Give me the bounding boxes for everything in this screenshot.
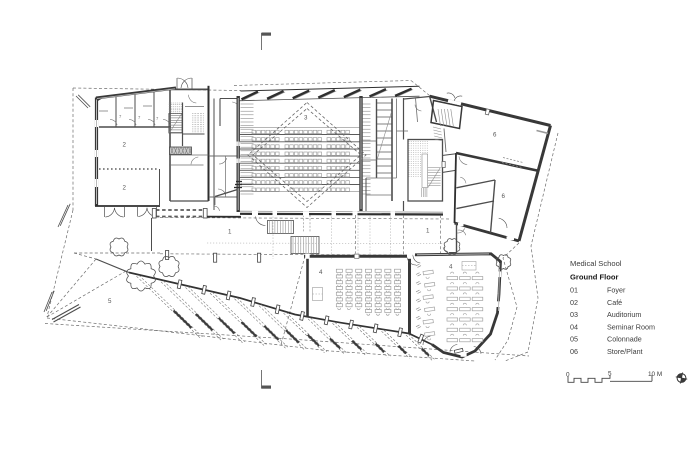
svg-text:Medical School: Medical School	[570, 259, 622, 268]
svg-text:5: 5	[108, 298, 112, 305]
svg-text:03: 03	[570, 310, 578, 319]
svg-text:Auditorium: Auditorium	[607, 310, 641, 319]
svg-text:Colonnade: Colonnade	[607, 335, 642, 344]
svg-text:4: 4	[319, 269, 323, 276]
svg-text:05: 05	[570, 335, 578, 344]
svg-text:10 M: 10 M	[648, 371, 662, 378]
svg-text:Ground Floor: Ground Floor	[570, 273, 619, 282]
svg-text:Seminar Room: Seminar Room	[607, 322, 655, 331]
svg-text:6: 6	[493, 132, 497, 139]
svg-text:06: 06	[570, 347, 578, 356]
svg-text:02: 02	[570, 298, 578, 307]
svg-text:1: 1	[228, 229, 232, 236]
svg-text:04: 04	[570, 322, 578, 331]
svg-text:Foyer: Foyer	[607, 286, 626, 295]
svg-text:6: 6	[502, 193, 506, 200]
svg-text:01: 01	[570, 286, 578, 295]
svg-text:Store/Plant: Store/Plant	[607, 347, 643, 356]
svg-text:2: 2	[123, 185, 127, 192]
svg-text:2: 2	[123, 142, 127, 149]
svg-text:Café: Café	[607, 298, 622, 307]
svg-text:3: 3	[304, 115, 308, 122]
svg-text:1: 1	[426, 228, 430, 235]
svg-text:4: 4	[449, 264, 453, 271]
